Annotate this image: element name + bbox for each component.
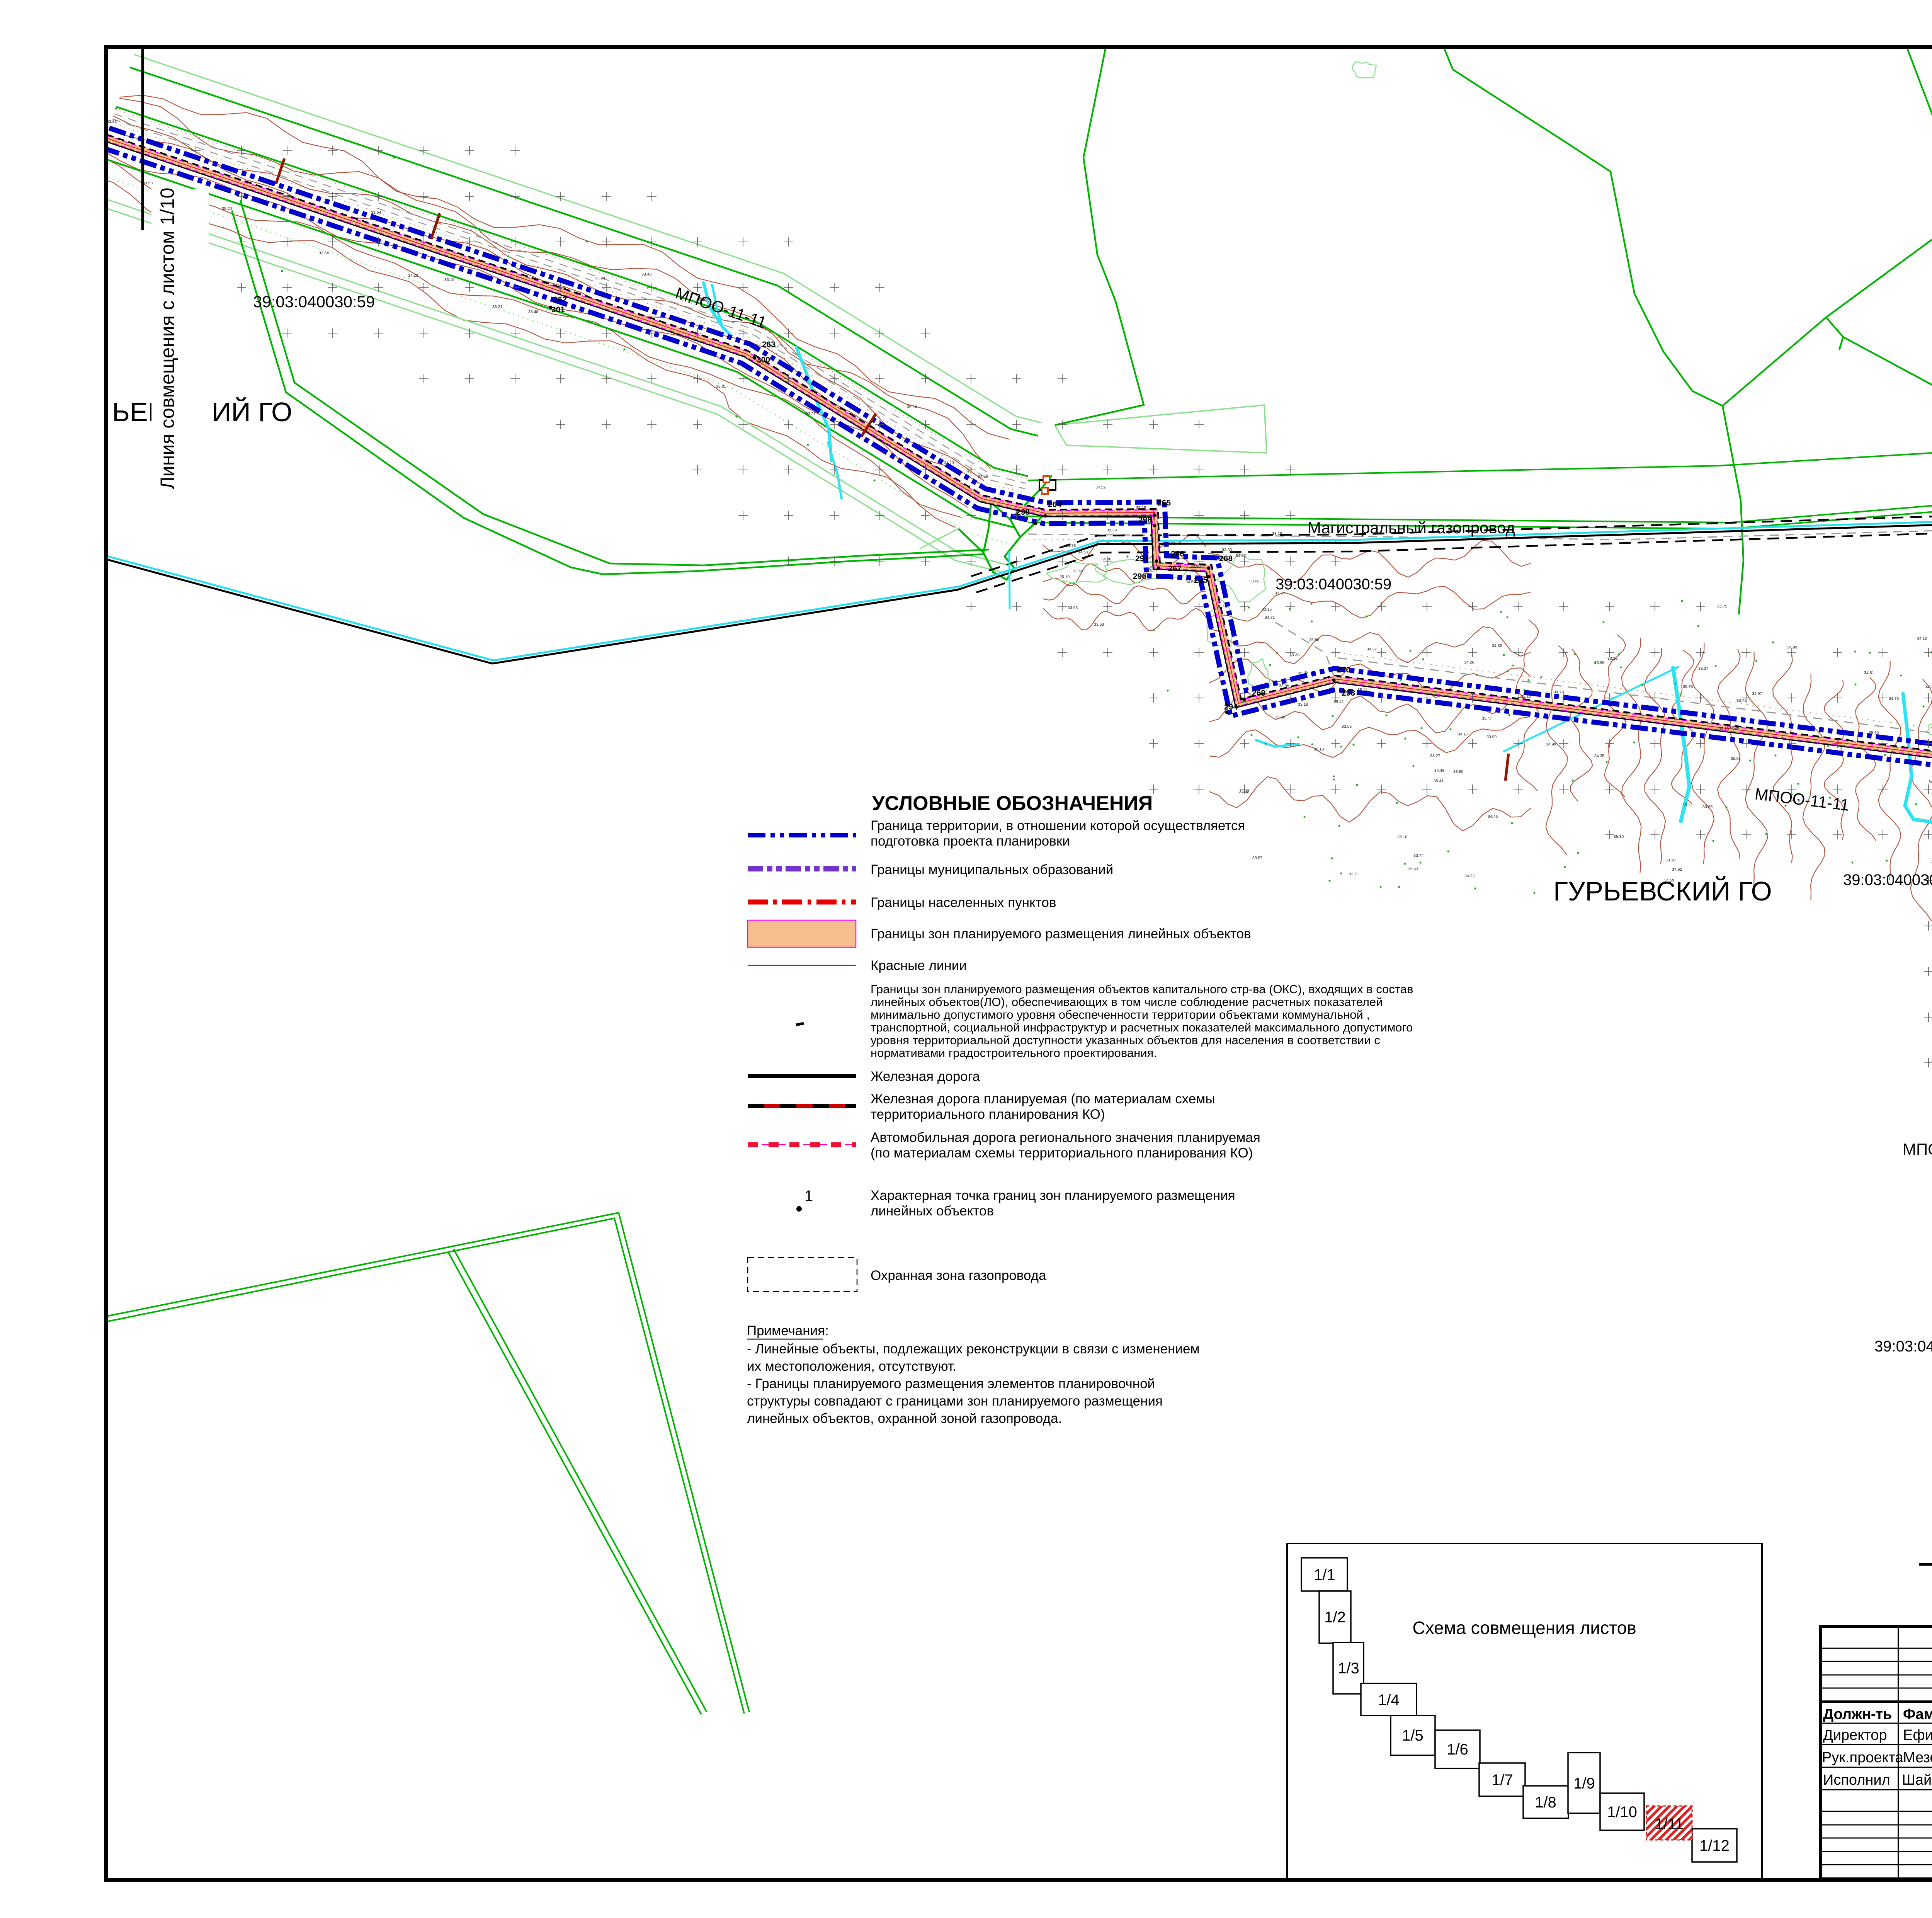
svg-text:35.30: 35.30 (1614, 834, 1624, 839)
svg-text:39:03:040030:59: 39:03:040030:59 (1276, 576, 1391, 593)
svg-text:35.10: 35.10 (1060, 575, 1070, 579)
svg-text:294: 294 (1224, 703, 1238, 711)
svg-text:33.98: 33.98 (1068, 606, 1078, 610)
svg-text:ГУРЬЕВСКИЙ ГО: ГУРЬЕВСКИЙ ГО (1553, 876, 1772, 906)
svg-text:33.27: 33.27 (1430, 754, 1440, 758)
svg-text:268: 268 (1219, 554, 1233, 563)
svg-text:33.55: 33.55 (1342, 724, 1352, 729)
svg-text:269: 269 (1252, 689, 1265, 698)
svg-text:территориального планирования: территориального планирования КО) (871, 1107, 1105, 1122)
svg-text:Исполнил: Исполнил (1823, 1772, 1890, 1788)
svg-text:1/8: 1/8 (1535, 1794, 1556, 1811)
svg-text:Границы зон планируемого разме: Границы зон планируемого размещения объе… (871, 982, 1413, 996)
svg-text:33.26: 33.26 (1607, 656, 1617, 661)
svg-text:35.70: 35.70 (1869, 730, 1879, 735)
svg-text:1/12: 1/12 (1699, 1837, 1730, 1854)
svg-text:1/7: 1/7 (1492, 1772, 1513, 1789)
svg-text:33.33: 33.33 (1222, 548, 1232, 552)
svg-text:33.43: 33.43 (641, 272, 651, 277)
svg-text:33.72: 33.72 (1736, 698, 1747, 703)
svg-text:300: 300 (757, 356, 770, 364)
svg-text:транспортной, социальной инфра: транспортной, социальной инфраструктур и… (871, 1021, 1413, 1034)
svg-text:33.74: 33.74 (1413, 853, 1423, 858)
svg-text:Граница территории, в отношени: Граница территории, в отношении которой … (871, 818, 1245, 833)
svg-text:35.12: 35.12 (1333, 699, 1344, 704)
svg-text:35.43: 35.43 (1408, 867, 1418, 871)
svg-text:34.99: 34.99 (1546, 742, 1556, 747)
svg-text:1/9: 1/9 (1573, 1775, 1595, 1792)
svg-text:39:03:040030:59: 39:03:040030:59 (253, 293, 375, 311)
svg-text:34.18: 34.18 (1917, 636, 1927, 641)
svg-text:33.81: 33.81 (716, 384, 726, 389)
svg-text:их местоположения, отсутствую: их местоположения, отсутствуют. (747, 1359, 956, 1374)
svg-text:34.97: 34.97 (1752, 691, 1762, 696)
svg-text:линейных объектов(ЛО), обеспеч: линейных объектов(ЛО), обеспечивающих в … (871, 995, 1383, 1009)
svg-text:35.47: 35.47 (1482, 716, 1492, 721)
svg-text:39:03:040030:59: 39:03:040030:59 (1843, 871, 1932, 888)
svg-text:нормативами градостроительного: нормативами градостроительного проектиро… (871, 1046, 1157, 1060)
svg-text:Линия совмещения с листом 1/1: Линия совмещения с листом 1/10 (156, 188, 178, 489)
svg-text:35.24: 35.24 (907, 405, 917, 409)
svg-text:35.11: 35.11 (1682, 803, 1692, 807)
svg-text:Должн-ть: Должн-ть (1823, 1706, 1892, 1722)
svg-text:(по материалам схемы территори: (по материалам схемы территориального пл… (871, 1145, 1253, 1161)
svg-text:1/5: 1/5 (1402, 1727, 1423, 1744)
svg-text:МПОО-11-11: МПОО-11-11 (1903, 1140, 1932, 1158)
svg-text:34.33: 34.33 (1464, 874, 1475, 878)
svg-text:35.20: 35.20 (222, 206, 232, 211)
svg-text:34.99: 34.99 (1787, 645, 1797, 650)
svg-text:39:03:040030:59: 39:03:040030:59 (1874, 1338, 1932, 1355)
svg-text:структуры совпадают с границам: структуры совпадают с границами зон план… (747, 1394, 1163, 1409)
svg-text:минимально допустимого уровня: минимально допустимого уровня обеспеченн… (871, 1008, 1370, 1021)
svg-text:298: 298 (1138, 516, 1152, 524)
svg-text:33.36: 33.36 (1644, 704, 1654, 709)
svg-text:Ефимова Н.И.: Ефимова Н.И. (1903, 1727, 1932, 1743)
svg-text:линейных объектов, охранной зо: линейных объектов, охранной зоной газопр… (747, 1411, 1062, 1426)
svg-text:34.73: 34.73 (1889, 696, 1899, 701)
svg-text:33.48: 33.48 (978, 475, 988, 479)
svg-text:Мезей О.В.: Мезей О.В. (1903, 1750, 1932, 1766)
svg-text:1/3: 1/3 (1338, 1660, 1359, 1677)
svg-text:33.43: 33.43 (1073, 569, 1083, 574)
svg-text:34.71: 34.71 (1265, 615, 1275, 620)
svg-text:262: 262 (553, 295, 567, 304)
svg-text:- Границы планируемого размеще: - Границы планируемого размещения элемен… (747, 1376, 1155, 1391)
svg-text:- Линейные объекты, подлежащих: - Линейные объекты, подлежащих реконстру… (747, 1341, 1200, 1356)
svg-text:35.18: 35.18 (1314, 747, 1324, 752)
svg-text:35.26: 35.26 (1729, 725, 1739, 730)
svg-text:33.18: 33.18 (1665, 858, 1675, 863)
svg-text:Характерная точка границ зон п: Характерная точка границ зон планируемог… (871, 1188, 1235, 1203)
svg-text:263: 263 (762, 340, 776, 349)
svg-text:33.64: 33.64 (371, 210, 381, 215)
svg-text:35.38: 35.38 (1289, 653, 1299, 657)
svg-text:Фамилия: Фамилия (1903, 1706, 1932, 1722)
svg-text:33.85: 33.85 (1702, 805, 1713, 809)
svg-text:Рук.проекта: Рук.проекта (1822, 1750, 1904, 1766)
svg-text:УСЛОВНЫЕ ОБОЗНАЧЕНИЯ: УСЛОВНЫЕ ОБОЗНАЧЕНИЯ (872, 792, 1153, 815)
svg-text:33.18: 33.18 (1272, 531, 1282, 536)
svg-text:34.17: 34.17 (1458, 732, 1468, 737)
svg-text:264: 264 (1048, 500, 1061, 509)
svg-text:Красные линии: Красные линии (871, 958, 967, 973)
svg-text:34.13: 34.13 (944, 461, 954, 465)
svg-text:297: 297 (1135, 554, 1149, 563)
svg-text:34.52: 34.52 (1165, 541, 1175, 546)
svg-text:1: 1 (804, 1188, 813, 1205)
svg-text:35.64: 35.64 (1731, 756, 1741, 761)
svg-text:33.62: 33.62 (1249, 579, 1259, 584)
svg-text:Границы зон планируемого разме: Границы зон планируемого размещения лине… (871, 926, 1251, 941)
svg-text:34.78: 34.78 (1066, 543, 1076, 548)
svg-text:34.79: 34.79 (1554, 690, 1564, 694)
svg-text:35.15: 35.15 (1136, 505, 1146, 510)
svg-text:35.88: 35.88 (1309, 638, 1319, 642)
svg-text:35.41: 35.41 (1217, 604, 1227, 609)
svg-text:Схема совмещения листов: Схема совмещения листов (1412, 1618, 1636, 1638)
svg-text:Автомобильная дорога региональ: Автомобильная дорога регионального значе… (871, 1130, 1260, 1145)
svg-text:Магистральный газопровод: Магистральный газопровод (1308, 519, 1515, 537)
svg-text:1/4: 1/4 (1378, 1692, 1400, 1709)
svg-text:33.99: 33.99 (1486, 735, 1497, 739)
svg-text:293: 293 (1342, 689, 1355, 698)
svg-text:35.58: 35.58 (1275, 715, 1285, 720)
svg-text:Директор: Директор (1823, 1727, 1887, 1743)
svg-text:299: 299 (1016, 508, 1030, 517)
svg-text:Охранная зона газопровода: Охранная зона газопровода (871, 1268, 1046, 1283)
svg-text:33.80: 33.80 (1453, 769, 1463, 774)
svg-text:34.52: 34.52 (1095, 485, 1105, 490)
svg-text:33.18: 33.18 (1298, 702, 1308, 707)
svg-text:34.37: 34.37 (1367, 647, 1377, 652)
svg-text:33.41: 33.41 (1389, 686, 1399, 691)
svg-text:Шаймухаметова: Шаймухаметова (1902, 1772, 1932, 1788)
svg-text:33.71: 33.71 (1349, 872, 1359, 876)
svg-text:33.17: 33.17 (1147, 568, 1157, 573)
svg-text:35.10: 35.10 (1397, 835, 1407, 839)
svg-text:33.87: 33.87 (1252, 856, 1262, 860)
svg-text:265: 265 (1157, 499, 1171, 507)
svg-text:34.85: 34.85 (1492, 643, 1502, 648)
svg-text:34.48: 34.48 (1434, 768, 1444, 773)
svg-text:33.37: 33.37 (1698, 666, 1708, 671)
svg-text:267: 267 (1168, 564, 1182, 573)
svg-text:33.48: 33.48 (528, 310, 538, 314)
svg-text:34.23: 34.23 (1925, 685, 1932, 689)
svg-text:1/11: 1/11 (1655, 1816, 1684, 1833)
svg-text:33.21: 33.21 (492, 305, 502, 309)
svg-text:34.23: 34.23 (408, 273, 418, 278)
svg-text:266: 266 (1171, 550, 1184, 558)
svg-text:33.64: 33.64 (319, 251, 329, 255)
svg-text:33.21: 33.21 (806, 412, 816, 416)
svg-text:подготовка проекта планировки: подготовка проекта планировки (871, 834, 1070, 849)
svg-text:35.76: 35.76 (1683, 684, 1693, 689)
svg-text:34.81: 34.81 (1864, 671, 1874, 675)
svg-text:33.83: 33.83 (107, 119, 117, 124)
svg-text:35.77: 35.77 (1298, 671, 1308, 676)
svg-text:301: 301 (551, 305, 565, 314)
svg-text:33.15: 33.15 (1262, 607, 1272, 612)
svg-text:1/6: 1/6 (1447, 1741, 1468, 1758)
svg-text:34.58: 34.58 (1078, 550, 1088, 555)
svg-text:линейных объектов: линейных объектов (871, 1203, 994, 1219)
svg-text:33.53: 33.53 (1094, 622, 1104, 627)
svg-text:Железная дорога: Железная дорога (871, 1069, 980, 1084)
svg-text:35.41: 35.41 (1434, 779, 1444, 783)
svg-text:1/2: 1/2 (1324, 1609, 1346, 1626)
svg-text:33.38: 33.38 (1107, 528, 1117, 533)
svg-text:1/10: 1/10 (1607, 1804, 1637, 1821)
svg-text:Примечания:: Примечания: (747, 1323, 829, 1338)
svg-text:34.46: 34.46 (1488, 814, 1498, 819)
svg-text:270: 270 (1337, 665, 1350, 674)
svg-text:Железная дорога планируемая (п: Железная дорога планируемая (по материал… (871, 1091, 1215, 1106)
svg-text:33.10: 33.10 (444, 277, 454, 282)
svg-text:Границы населенных пунктов: Границы населенных пунктов (871, 895, 1056, 910)
svg-text:33.24: 33.24 (595, 276, 605, 281)
svg-text:34.85: 34.85 (1929, 779, 1932, 784)
svg-text:34.35: 34.35 (1594, 754, 1604, 758)
svg-text:Границы муниципальных образова: Границы муниципальных образований (871, 862, 1113, 877)
svg-text:35.13: 35.13 (1719, 727, 1729, 731)
svg-text:35.14: 35.14 (1357, 688, 1367, 692)
svg-text:ИЙ ГО: ИЙ ГО (212, 397, 293, 427)
svg-text:35.75: 35.75 (1717, 604, 1727, 609)
svg-text:33.53: 33.53 (143, 181, 153, 186)
svg-text:296: 296 (1133, 572, 1146, 581)
svg-text:295: 295 (1194, 576, 1207, 585)
svg-text:34.26: 34.26 (1464, 660, 1474, 665)
svg-text:уровня территориальной доступн: уровня территориальной доступности указа… (871, 1033, 1380, 1047)
svg-text:1/1: 1/1 (1314, 1566, 1335, 1583)
svg-text:34.62: 34.62 (1672, 867, 1682, 872)
